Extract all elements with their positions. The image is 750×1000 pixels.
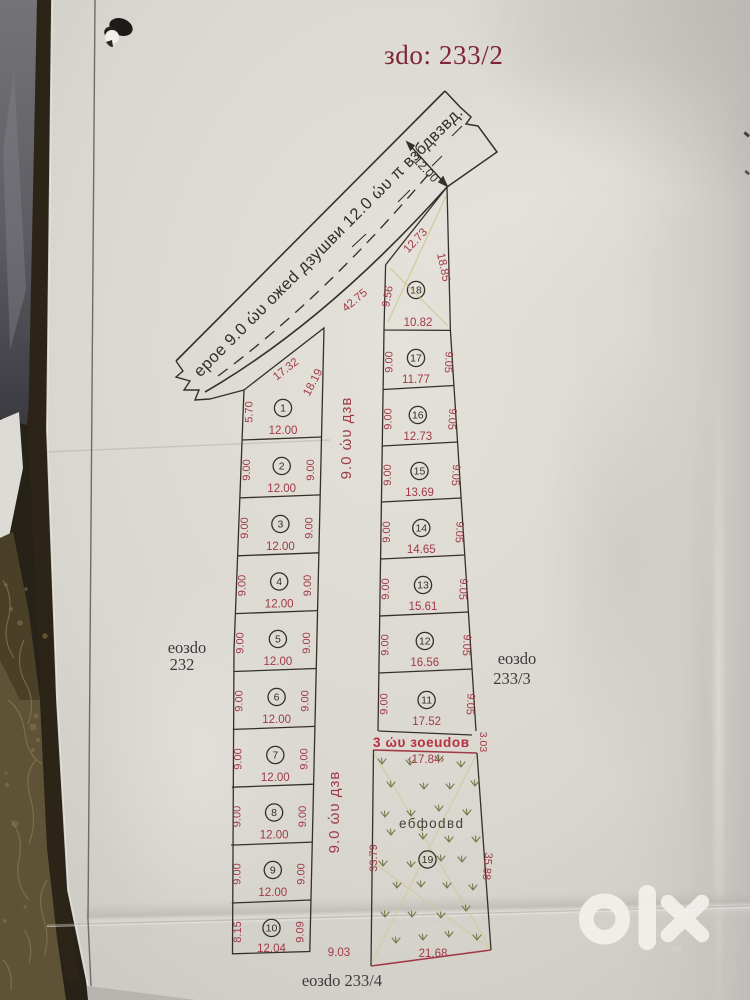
svg-text:9.00: 9.00: [233, 690, 245, 711]
svg-text:9.00: 9.00: [232, 748, 244, 769]
svg-text:3.03: 3.03: [477, 732, 489, 753]
svg-text:9.0 ώυ дзв: 9.0 ώυ дзв: [326, 771, 343, 854]
svg-text:9.03: 9.03: [328, 947, 350, 959]
svg-text:3: 3: [277, 519, 283, 531]
svg-text:12.00: 12.00: [262, 714, 291, 726]
svg-text:11.77: 11.77: [402, 374, 430, 386]
svg-text:8: 8: [271, 807, 277, 819]
svg-text:9.00: 9.00: [239, 517, 251, 538]
svg-text:9.05: 9.05: [449, 464, 462, 486]
svg-text:9.00: 9.00: [298, 748, 310, 769]
svg-text:13: 13: [417, 580, 429, 592]
svg-text:9.05: 9.05: [453, 521, 466, 543]
svg-text:12.00: 12.00: [258, 887, 287, 899]
svg-text:33.79: 33.79: [368, 844, 380, 872]
svg-text:12.00: 12.00: [267, 483, 296, 495]
svg-text:9.0 ώυ дзв: 9.0 ώυ дзв: [338, 397, 355, 480]
svg-text:9.00: 9.00: [382, 464, 394, 485]
svg-text:14: 14: [415, 523, 427, 535]
svg-text:5.70: 5.70: [243, 401, 255, 422]
svg-text:9.00: 9.00: [302, 575, 314, 596]
svg-text:12.00: 12.00: [269, 425, 298, 437]
svg-text:19: 19: [422, 854, 434, 866]
svg-text:9.00: 9.00: [297, 806, 309, 827]
svg-text:8.15: 8.15: [232, 921, 244, 942]
svg-text:9.00: 9.00: [305, 459, 317, 480]
svg-text:9.00: 9.00: [380, 578, 392, 599]
svg-text:зdо: 233/2: зdо: 233/2: [384, 40, 503, 70]
svg-text:12.00: 12.00: [266, 541, 295, 553]
svg-text:10: 10: [266, 923, 278, 935]
svg-text:9.00: 9.00: [300, 690, 312, 711]
svg-text:9.00: 9.00: [383, 408, 395, 429]
svg-text:15: 15: [414, 466, 426, 478]
svg-text:9.00: 9.00: [231, 863, 243, 884]
svg-text:17: 17: [410, 353, 422, 365]
svg-text:9.05: 9.05: [442, 351, 455, 373]
svg-text:9.00: 9.00: [237, 575, 249, 596]
svg-text:233/3: 233/3: [493, 669, 531, 688]
svg-text:232: 232: [170, 655, 195, 674]
svg-text:9.05: 9.05: [456, 578, 469, 600]
svg-text:12.00: 12.00: [261, 772, 290, 784]
svg-text:9.00: 9.00: [301, 632, 313, 653]
svg-text:9.00: 9.00: [384, 351, 396, 372]
svg-text:9: 9: [270, 865, 276, 877]
svg-text:12.04: 12.04: [257, 943, 286, 955]
svg-text:16: 16: [412, 410, 424, 422]
svg-text:9.05: 9.05: [460, 634, 473, 656]
svg-text:12: 12: [419, 636, 431, 648]
svg-text:9.00: 9.00: [381, 521, 393, 542]
svg-text:еозdо: еозdо: [498, 649, 537, 668]
svg-text:9.00: 9.00: [296, 863, 308, 884]
svg-text:6: 6: [274, 692, 280, 704]
svg-text:3 ώυ зоеudов: 3 ώυ зоеudов: [373, 735, 469, 750]
svg-text:еозdо 233/4: еозdо 233/4: [302, 971, 382, 990]
svg-text:9.00: 9.00: [234, 632, 246, 653]
svg-text:12.00: 12.00: [260, 830, 289, 842]
svg-text:11: 11: [421, 695, 432, 707]
svg-text:4: 4: [276, 576, 282, 588]
svg-text:olx: olx: [671, 943, 683, 953]
svg-text:9.00: 9.00: [379, 634, 391, 655]
svg-text:13.69: 13.69: [405, 487, 434, 499]
svg-text:2: 2: [279, 461, 285, 473]
svg-text:15.61: 15.61: [409, 601, 438, 613]
svg-text:21.68: 21.68: [419, 948, 448, 960]
svg-text:12.00: 12.00: [264, 656, 293, 668]
svg-text:9.00: 9.00: [241, 459, 253, 480]
svg-text:14.65: 14.65: [407, 544, 436, 556]
svg-text:5: 5: [275, 634, 281, 646]
svg-text:9.00: 9.00: [378, 693, 390, 714]
svg-text:12.00: 12.00: [265, 599, 294, 611]
svg-text:7: 7: [272, 750, 278, 762]
svg-text:9.00: 9.00: [232, 806, 244, 827]
svg-text:17.52: 17.52: [412, 716, 441, 728]
svg-text:12.73: 12.73: [403, 431, 432, 443]
svg-text:9.00: 9.00: [304, 517, 316, 538]
svg-text:10.82: 10.82: [404, 317, 433, 329]
svg-text:35.88: 35.88: [480, 852, 494, 880]
svg-text:9.05: 9.05: [464, 693, 477, 715]
svg-text:ебфоdвd: ебфоdвd: [399, 816, 463, 831]
svg-text:9.05: 9.05: [445, 408, 458, 430]
svg-text:16.56: 16.56: [410, 657, 439, 669]
svg-text:1: 1: [280, 403, 286, 415]
svg-text:9.09: 9.09: [294, 921, 306, 942]
